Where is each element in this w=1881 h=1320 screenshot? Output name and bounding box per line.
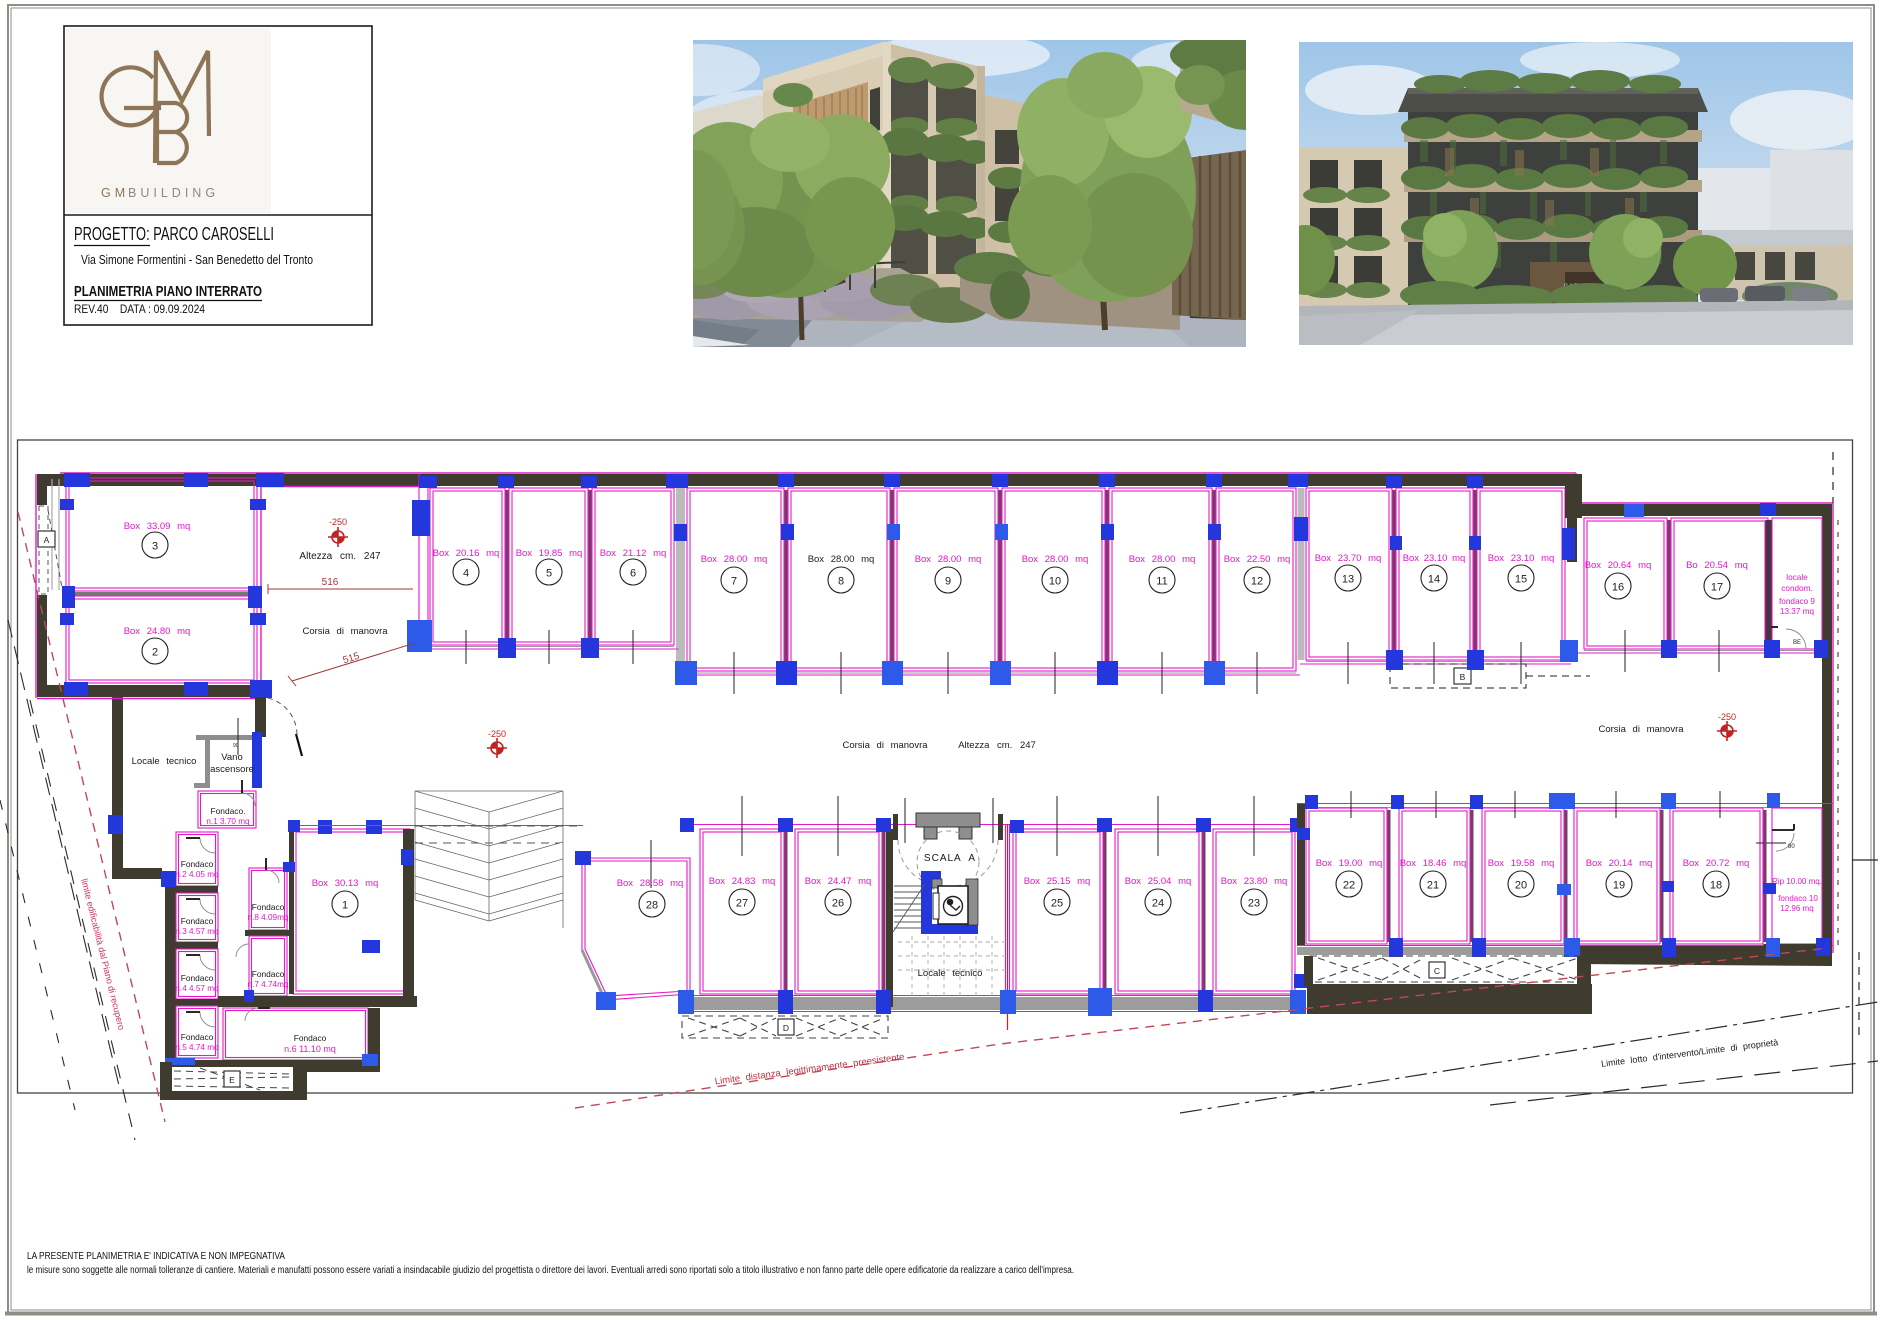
svg-text:PLANIMETRIA PIANO INTERRATO: PLANIMETRIA PIANO INTERRATO	[74, 284, 262, 300]
svg-text:Fondaco.: Fondaco.	[211, 806, 246, 816]
svg-text:6: 6	[630, 568, 636, 580]
svg-text:D: D	[783, 1023, 789, 1033]
svg-text:Fondaco: Fondaco	[181, 973, 214, 983]
svg-text:Rip 10.00 mq.: Rip 10.00 mq.	[1772, 877, 1822, 886]
svg-text:Box 24.47 mq: Box 24.47 mq	[805, 876, 872, 887]
svg-text:9: 9	[945, 576, 951, 588]
svg-text:n.6 11.10 mq: n.6 11.10 mq	[284, 1044, 336, 1054]
svg-text:14: 14	[1428, 574, 1440, 586]
svg-text:8: 8	[838, 576, 844, 588]
svg-text:Box 23.10 mq: Box 23.10 mq	[1488, 553, 1555, 564]
svg-text:n.8 4.09mq: n.8 4.09mq	[248, 913, 289, 922]
svg-text:REV.40 DATA : 09.09.2024: REV.40 DATA : 09.09.2024	[74, 302, 205, 316]
svg-text:17: 17	[1711, 582, 1723, 594]
svg-text:25: 25	[1051, 898, 1063, 910]
svg-text:24: 24	[1152, 898, 1164, 910]
svg-text:Fondaco: Fondaco	[294, 1033, 327, 1043]
svg-text:fondaco 10: fondaco 10	[1778, 894, 1818, 903]
svg-text:Bo 20.54 mq: Bo 20.54 mq	[1686, 560, 1748, 571]
svg-text:Corsia di manovra: Corsia di manovra	[302, 626, 388, 637]
svg-text:Corsia di manovra: Corsia di manovra	[842, 740, 928, 751]
svg-text:22: 22	[1343, 880, 1355, 892]
svg-text:-250: -250	[1718, 712, 1736, 722]
svg-text:limite edificabilità dal Pi: limite edificabilità dal Piano di recupe…	[79, 878, 126, 1031]
svg-text:26: 26	[832, 898, 844, 910]
svg-text:2: 2	[152, 647, 158, 659]
svg-text:n.7 4.74mq: n.7 4.74mq	[248, 980, 289, 989]
svg-text:21: 21	[1427, 880, 1439, 892]
svg-text:Box 30.13 mq: Box 30.13 mq	[312, 878, 379, 889]
svg-text:Box 28.58 mq: Box 28.58 mq	[617, 878, 684, 889]
svg-text:Fondaco: Fondaco	[181, 1032, 214, 1042]
svg-text:15: 15	[1515, 574, 1527, 586]
svg-text:Locale tecnico: Locale tecnico	[132, 756, 197, 767]
svg-text:16: 16	[1612, 582, 1624, 594]
svg-text:Fondaco: Fondaco	[181, 859, 214, 869]
svg-text:28: 28	[646, 900, 658, 912]
svg-text:Box 21.12 mq: Box 21.12 mq	[600, 548, 667, 559]
svg-text:fondaco 9: fondaco 9	[1779, 597, 1815, 606]
svg-text:Altezza cm. 247: Altezza cm. 247	[958, 740, 1036, 751]
svg-text:13: 13	[1342, 574, 1354, 586]
svg-text:BE: BE	[1793, 640, 1801, 646]
svg-text:Locale tecnico: Locale tecnico	[918, 968, 983, 979]
svg-text:Box 28.00 mq: Box 28.00 mq	[808, 554, 875, 565]
svg-text:Box 19.85 mq: Box 19.85 mq	[516, 548, 583, 559]
svg-text:Box 28.00 mq: Box 28.00 mq	[1022, 554, 1089, 565]
svg-text:18: 18	[1710, 880, 1722, 892]
svg-text:1: 1	[342, 900, 348, 912]
svg-text:13.37 mq: 13.37 mq	[1780, 607, 1815, 616]
svg-text:80: 80	[1788, 844, 1795, 850]
svg-text:Box 28.00 mq: Box 28.00 mq	[1129, 554, 1196, 565]
svg-text:-250: -250	[329, 517, 347, 527]
svg-text:LA PRESENTE PLANIMETRIA E' IND: LA PRESENTE PLANIMETRIA E' INDICATIVA E …	[27, 1251, 285, 1262]
svg-text:Box 24.80 mq: Box 24.80 mq	[124, 626, 191, 637]
svg-text:19: 19	[1613, 880, 1625, 892]
svg-text:Box 25.04 mq: Box 25.04 mq	[1125, 876, 1192, 887]
svg-text:Box 20.16 mq: Box 20.16 mq	[433, 548, 500, 559]
svg-text:12.96 mq: 12.96 mq	[1780, 904, 1813, 913]
svg-text:Box 23.10 mq: Box 23.10 mq	[1403, 553, 1466, 564]
svg-text:Box 18.46 mq: Box 18.46 mq	[1400, 858, 1467, 869]
svg-text:20: 20	[1515, 880, 1527, 892]
svg-text:C: C	[1434, 966, 1440, 976]
svg-text:Corsia di manovra: Corsia di manovra	[1598, 724, 1684, 735]
svg-text:Limite lotto d'intervento/Li: Limite lotto d'intervento/Limite di prop…	[1601, 1037, 1779, 1069]
svg-text:n.5 4.74 mq: n.5 4.74 mq	[175, 1043, 219, 1052]
svg-text:Box 33.09 mq: Box 33.09 mq	[124, 521, 191, 532]
svg-text:Box 25.15 mq: Box 25.15 mq	[1024, 876, 1091, 887]
svg-text:-250: -250	[488, 729, 506, 739]
svg-text:le misure sono soggette alle n: le misure sono soggette alle normali tol…	[27, 1265, 1074, 1276]
svg-text:Box 20.14 mq: Box 20.14 mq	[1586, 858, 1653, 869]
svg-text:Box 19.58 mq: Box 19.58 mq	[1488, 858, 1555, 869]
svg-text:Box 22.50 mq: Box 22.50 mq	[1224, 554, 1291, 565]
svg-text:Fondaco: Fondaco	[252, 969, 285, 979]
svg-text:n.1 3.70 mq: n.1 3.70 mq	[206, 817, 250, 826]
svg-text:Box 19.00 mq: Box 19.00 mq	[1316, 858, 1383, 869]
svg-text:A: A	[44, 535, 50, 545]
svg-text:Via Simone Formentini - San Be: Via Simone Formentini - San Benedetto de…	[81, 253, 313, 267]
svg-text:locale: locale	[1786, 573, 1808, 582]
svg-text:516: 516	[322, 577, 339, 588]
svg-text:B: B	[1460, 672, 1466, 682]
svg-text:5: 5	[546, 568, 552, 580]
svg-text:Altezza cm. 247: Altezza cm. 247	[299, 551, 381, 562]
svg-text:12: 12	[1251, 576, 1263, 588]
svg-text:n.2 4.05 mq: n.2 4.05 mq	[175, 870, 219, 879]
svg-text:condom.: condom.	[1781, 584, 1812, 593]
svg-text:n.3 4.57 mq: n.3 4.57 mq	[175, 927, 219, 936]
svg-text:515: 515	[342, 651, 362, 667]
svg-text:Box 23.70 mq: Box 23.70 mq	[1315, 553, 1382, 564]
svg-text:E: E	[229, 1075, 235, 1085]
svg-text:7: 7	[731, 576, 737, 588]
svg-text:23: 23	[1248, 898, 1260, 910]
svg-text:GM: GM	[101, 186, 129, 200]
svg-text:Box 20.64 mq: Box 20.64 mq	[1585, 560, 1652, 571]
svg-text:Box 28.00 mq: Box 28.00 mq	[701, 554, 768, 565]
svg-text:11: 11	[1156, 576, 1167, 588]
svg-text:Box 20.72 mq: Box 20.72 mq	[1683, 858, 1750, 869]
svg-text:PROGETTO: PARCO CAROSELLI: PROGETTO: PARCO CAROSELLI	[74, 223, 274, 244]
svg-text:4: 4	[463, 568, 469, 580]
svg-text:Fondaco: Fondaco	[181, 916, 214, 926]
svg-text:Box 23.80 mq: Box 23.80 mq	[1221, 876, 1288, 887]
svg-text:n.4 4.57 mq: n.4 4.57 mq	[175, 984, 219, 993]
svg-text:Box 28.00 mq: Box 28.00 mq	[915, 554, 982, 565]
svg-text:Vano: Vano	[221, 752, 242, 763]
svg-text:10: 10	[1049, 576, 1061, 588]
svg-text:3: 3	[152, 541, 158, 553]
svg-text:BUILDING: BUILDING	[128, 186, 219, 200]
svg-text:90: 90	[233, 743, 239, 749]
svg-text:Fondaco: Fondaco	[252, 902, 285, 912]
svg-text:Box 24.83 mq: Box 24.83 mq	[709, 876, 776, 887]
svg-text:27: 27	[736, 898, 748, 910]
svg-text:Limite distanza legittimamen: Limite distanza legittimamente preesiste…	[714, 1052, 905, 1088]
svg-text:SCALA A: SCALA A	[924, 853, 976, 864]
svg-text:ascensore: ascensore	[210, 764, 254, 775]
